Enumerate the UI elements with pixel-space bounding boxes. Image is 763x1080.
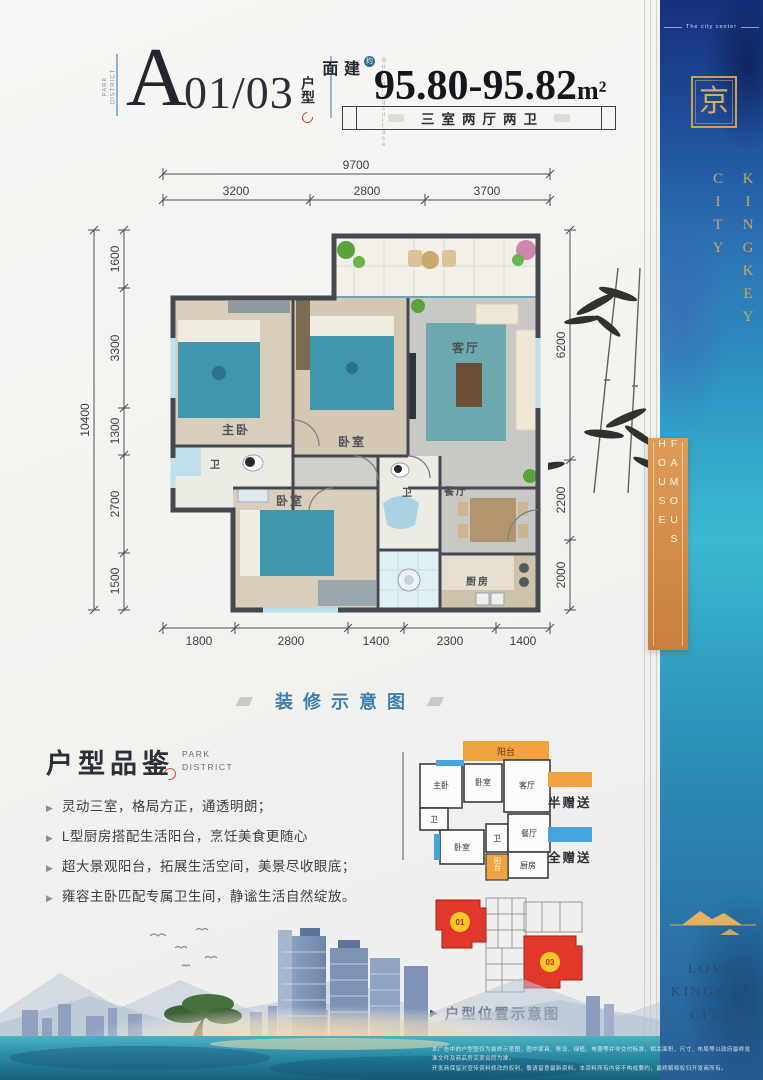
dim-bottom-4: 2300 <box>437 634 464 648</box>
label-living: 客厅 <box>451 340 480 355</box>
legend-label-full: 全赠送 <box>548 847 612 866</box>
balcony-top <box>334 236 538 298</box>
dim-left-4: 2700 <box>108 490 122 517</box>
dim-left-3: 1300 <box>108 417 122 444</box>
layout-type-banner: 三室两厅两卫 <box>342 106 616 130</box>
dim-top-1: 3200 <box>223 184 250 198</box>
legend-swatch-full <box>548 827 592 842</box>
brand-seal-logo: 京 <box>691 76 737 128</box>
living-sofa <box>516 330 536 430</box>
bedroom3-bench <box>318 580 376 606</box>
mini-living-label: 客厅 <box>519 780 535 790</box>
unit-number: 01/03 <box>184 66 294 119</box>
balcony-table <box>421 251 439 269</box>
birds <box>150 929 217 967</box>
label-bedroom3: 卧室 <box>276 493 304 508</box>
dim-top-3: 3700 <box>474 184 501 198</box>
love-kingkey-city-text: LOVE KINGKEY CITY <box>660 958 763 1027</box>
kitchen-sink-1 <box>476 593 489 605</box>
living-armchair <box>476 304 518 324</box>
bullet-text: 灵动三室，格局方正，通透明朗； <box>62 795 272 815</box>
label-master: 主卧 <box>222 422 250 437</box>
area-prefix-label: 建面 <box>342 60 360 76</box>
gift-legend: 半赠送 全赠送 <box>548 772 612 882</box>
tagline-line-left <box>664 27 682 28</box>
gold-mountain-art <box>668 903 758 945</box>
master-bed-pillows <box>178 320 260 342</box>
caption-ornament-left <box>236 697 253 706</box>
mini-bedroom3-label: 卧室 <box>454 842 470 852</box>
dining-chair-1 <box>458 502 468 516</box>
washing-machine-drum <box>404 575 414 585</box>
bath2-toilet-lid <box>394 465 402 473</box>
dim-left-5: 1500 <box>108 567 122 594</box>
living-coffee-table <box>456 363 482 407</box>
balcony-plant-2 <box>353 256 365 268</box>
floorplan-poster: PARK DISTRICT A 01/03 户型 建面 约 B u i l d … <box>0 0 763 1080</box>
review-title: 户型品鉴 <box>46 742 174 781</box>
balcony-chair-2 <box>442 250 456 267</box>
mini-bath2-label: 卫 <box>493 834 501 843</box>
balcony-plant-1 <box>337 241 355 259</box>
disclaimer-line-2: 开发商保留对宣传资料修改的权利，敬请留意最新资料。本资料所有内容不构成要约，最终… <box>432 1065 754 1074</box>
mini-balcony-bottom-label: 阳台 <box>494 856 502 872</box>
disclaimer-line-1: 本广告中的户型图仅为装修示意图，图中家具、陈设、绿植、电器等并非交付标准，相关面… <box>432 1046 754 1065</box>
review-divider <box>402 752 404 860</box>
dim-top-2: 2800 <box>354 184 381 198</box>
master-bed-deco <box>212 366 226 380</box>
bedroom2-bed-pillows <box>310 316 394 336</box>
dining-chair-2 <box>458 524 468 538</box>
dim-right-3: 2000 <box>554 561 568 588</box>
bedroom2-cabinet <box>296 300 310 370</box>
plan-caption-text: 装修示意图 <box>265 688 415 714</box>
plant-living-1 <box>411 299 425 313</box>
red-swoosh-ornament <box>300 110 315 125</box>
kitchen-stove-1 <box>519 563 529 573</box>
floorplan-drawing: 9700 3200 2800 3700 10400 1600 3300 1300… <box>78 158 600 730</box>
dim-bottom-3: 1400 <box>363 634 390 648</box>
mini-bedroom2-label: 卧室 <box>475 777 491 787</box>
dim-top-total: 9700 <box>343 158 370 172</box>
tagline-line-right <box>741 27 759 28</box>
area-number: 95.80-95.82 <box>374 63 577 109</box>
master-wardrobe <box>228 301 290 313</box>
bullet-item: ▶ L型厨房搭配生活阳台，烹饪美食更随心 <box>46 825 406 845</box>
dim-left-1: 1600 <box>108 245 122 272</box>
dim-left-total: 10400 <box>78 403 92 437</box>
bath1-toilet-lid <box>245 457 255 467</box>
review-section: 户型品鉴 PARK DISTRICT ▶ 灵动三室，格局方正，通透明朗； ▶ L… <box>46 742 406 915</box>
bullet-item: ▶ 超大景观阳台，拓展生活空间，美景尽收眼底； <box>46 855 406 875</box>
review-subtitle: PARK DISTRICT <box>182 748 233 774</box>
layout-type-text: 三室两厅两卫 <box>414 108 544 128</box>
balcony-chair-1 <box>408 250 422 267</box>
plan-caption: 装修示意图 <box>170 688 510 714</box>
scroll-ornament-left <box>388 114 404 122</box>
label-bath2: 卫 <box>402 487 414 499</box>
bath2-tub <box>383 496 419 529</box>
bullet-arrow-icon: ▶ <box>46 893 53 904</box>
legend-item-full: 全赠送 <box>548 827 612 866</box>
legend-label-half: 半赠送 <box>548 792 612 811</box>
mini-master-label: 主卧 <box>433 780 449 790</box>
dim-bottom-5: 1400 <box>510 634 537 648</box>
bullet-arrow-icon: ▶ <box>46 803 53 814</box>
bullet-text: L型厨房搭配生活阳台，烹饪美食更随心 <box>62 825 308 845</box>
label-bath1: 卫 <box>210 459 222 471</box>
bullet-arrow-icon: ▶ <box>46 833 53 844</box>
dim-left-2: 3300 <box>108 334 122 361</box>
balcony-plant-3 <box>512 254 524 266</box>
banner-end-right <box>601 107 615 129</box>
bullet-text: 超大景观阳台，拓展生活空间，美景尽收眼底； <box>62 855 356 875</box>
banner-tagline: The city center <box>664 24 759 30</box>
kitchen-sink-2 <box>491 593 504 605</box>
mini-gift-blue-2 <box>434 834 440 860</box>
mini-gift-blue-1 <box>436 760 464 766</box>
kitchen-stove-2 <box>519 577 529 587</box>
plant-living-2 <box>523 469 537 483</box>
legend-item-half: 半赠送 <box>548 772 612 811</box>
header: PARK DISTRICT A 01/03 户型 建面 约 B u i l d … <box>88 40 628 140</box>
bath1-sink <box>238 488 268 502</box>
label-kitchen: 厨房 <box>466 575 490 588</box>
mini-balcony-top-label: 阳台 <box>497 746 515 757</box>
bath1-shower <box>173 446 201 476</box>
unit-letter: A <box>126 36 187 120</box>
famous-house-text: FAMOUS HOUSE <box>656 438 680 650</box>
bullet-item: ▶ 灵动三室，格局方正，通透明朗； <box>46 795 406 815</box>
bullet-text: 雍容主卧匹配专属卫生间，静谧生活自然绽放。 <box>62 885 356 905</box>
living-tv <box>409 353 416 419</box>
bullet-item: ▶ 雍容主卧匹配专属卫生间，静谧生活自然绽放。 <box>46 885 406 905</box>
dim-bottom-1: 1800 <box>186 634 213 648</box>
bedroom3-bed-pillows <box>240 510 260 576</box>
label-dining: 餐厅 <box>443 485 468 498</box>
banner-end-left <box>343 107 357 129</box>
mini-bath1-label: 卫 <box>430 815 438 824</box>
header-accent-line <box>116 54 118 116</box>
caption-ornament-right <box>427 697 444 706</box>
legend-swatch-half <box>548 772 592 787</box>
label-bedroom2: 卧室 <box>338 434 366 449</box>
area-unit: m² <box>577 76 606 105</box>
area-value: 95.80-95.82m² <box>374 62 606 110</box>
famous-house-banner: FAMOUS HOUSE <box>648 438 688 650</box>
dining-table <box>470 498 516 542</box>
bedroom2-bed-deco <box>346 362 358 374</box>
unit-suffix-label: 户型 <box>300 76 316 104</box>
disclaimer: 本广告中的户型图仅为装修示意图，图中家具、陈设、绿植、电器等并非交付标准，相关面… <box>432 1046 754 1074</box>
mini-kitchen-label: 厨房 <box>520 860 536 870</box>
dining-chair-4 <box>518 524 528 538</box>
seal-glyph: 京 <box>699 87 729 117</box>
tagline-text: The city center <box>686 24 737 30</box>
mini-dining-label: 餐厅 <box>521 829 537 838</box>
bullet-arrow-icon: ▶ <box>46 863 53 874</box>
dim-bottom-2: 2800 <box>278 634 305 648</box>
scroll-ornament-right <box>554 114 570 122</box>
review-bullets: ▶ 灵动三室，格局方正，通透明朗； ▶ L型厨房搭配生活阳台，烹饪美食更随心 ▶… <box>46 795 406 905</box>
